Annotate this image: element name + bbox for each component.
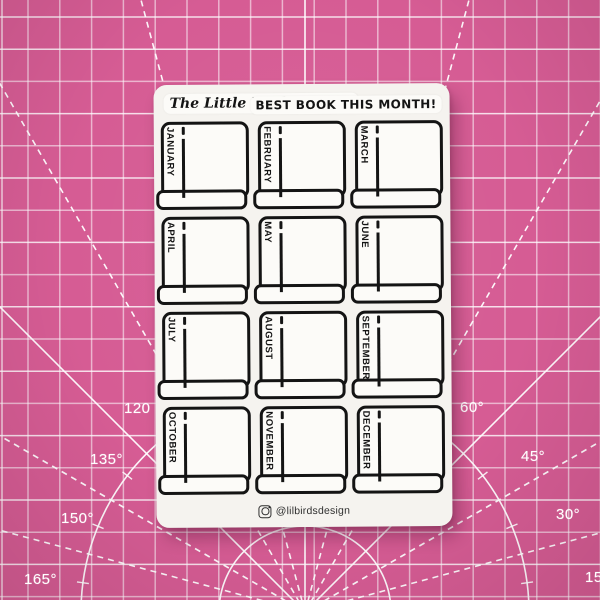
month-label: JULY [166,317,176,343]
spine-line [376,137,379,196]
bookmark-dash [377,315,380,323]
bookmark-dash [279,126,282,134]
bookmark-dash [378,410,381,418]
book-pages [352,378,443,399]
spine-line [184,424,187,483]
bookmark-dash [279,221,282,229]
month-label: MARCH [359,126,369,164]
title-sticker: BEST BOOK THIS MONTH! [250,95,441,114]
angle-label-15: 15 [585,569,600,586]
book-pages [352,473,443,494]
book-pages [350,188,441,209]
angle-label-150: 150° [61,510,94,527]
month-book-sticker-january: JANUARY [161,121,250,210]
spine-line [378,422,381,481]
angle-label-120: 120 [124,400,151,417]
book-pages [156,189,247,210]
instagram-icon [259,505,272,518]
spine-line [182,139,185,198]
angle-label-45: 45° [521,448,545,465]
month-book-sticker-may: MAY [258,216,347,305]
month-label: MAY [262,221,272,243]
bookmark-dash [376,220,379,228]
book-pages [253,189,344,210]
bookmark-dash [182,222,185,230]
month-label: AUGUST [263,316,273,360]
book-pages [351,283,442,304]
spine-line [279,233,282,292]
bookmark-dash [184,412,187,420]
month-book-sticker-december: DECEMBER [357,405,446,494]
book-pages [158,474,249,495]
month-book-sticker-november: NOVEMBER [260,406,349,495]
month-label: FEBRUARY [262,126,272,183]
bookmark-dash [376,125,379,133]
bookmark-dash [281,411,284,419]
book-pages [255,474,346,495]
month-label: JANUARY [165,127,175,177]
month-book-sticker-august: AUGUST [259,311,348,400]
instagram-handle: @lilbirdsdesign [276,505,350,518]
month-label: DECEMBER [361,411,371,470]
spine-line [182,234,185,293]
angle-label-165: 165° [24,571,57,588]
bookmark-dash [280,316,283,324]
spine-line [377,327,380,386]
spine-line [279,138,282,197]
month-book-sticker-march: MARCH [355,120,444,209]
spine-line [183,329,186,388]
month-book-sticker-june: JUNE [355,215,444,304]
footer-credit: @lilbirdsdesign [156,502,452,520]
month-book-sticker-april: APRIL [161,216,250,305]
spine-line [280,328,283,387]
book-sticker-grid: JANUARY FEBRUARY MARCH APRIL [161,120,446,495]
sticker-sheet: The Little Bird Designs BEST BOOK THIS M… [153,83,452,528]
month-label: OCTOBER [167,412,177,463]
month-book-sticker-october: OCTOBER [163,406,252,495]
book-pages [254,284,345,305]
book-pages [255,379,346,400]
angle-label-135: 135° [90,451,123,468]
bookmark-dash [182,127,185,135]
month-label: APRIL [165,222,175,253]
angle-label-60: 60° [460,399,484,416]
month-label: JUNE [359,221,369,249]
spine-line [281,423,284,482]
spine-line [376,232,379,291]
bookmark-dash [183,317,186,325]
month-book-sticker-february: FEBRUARY [258,121,347,210]
month-label: NOVEMBER [264,411,274,471]
book-pages [158,379,249,400]
month-book-sticker-july: JULY [162,311,251,400]
angle-label-30: 30° [556,506,580,523]
month-label: SEPTEMBER [360,316,370,380]
month-book-sticker-september: SEPTEMBER [356,310,445,399]
book-pages [157,284,248,305]
